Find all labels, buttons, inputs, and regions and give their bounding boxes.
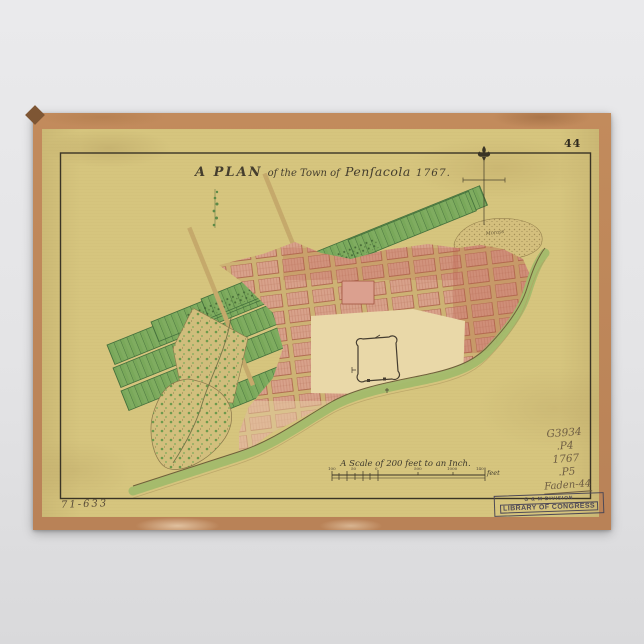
map-poster: A PLAN of the Town of Penſacola 1767. 44… (33, 113, 611, 530)
scale-tick-label: 50 (351, 466, 356, 471)
title-place: Penſacola (345, 164, 411, 179)
title-middle: of the Town of (268, 168, 340, 179)
scale-tick-label: 1400 (476, 466, 486, 471)
margin-note: 71-633 (61, 498, 109, 511)
sprig-plant (213, 189, 219, 228)
scale-tick-label: 1000 (447, 466, 457, 471)
library-stamp: G & M DIVISION LIBRARY OF CONGRESS (494, 492, 605, 517)
scale-bar (332, 470, 485, 481)
scale-unit-label: feet (487, 469, 500, 477)
plate-number: 44 (564, 137, 581, 150)
scale-tick-label: 500 (414, 466, 422, 471)
map-title: A PLAN of the Town of Penſacola 1767. (173, 161, 473, 180)
scale-caption: A Scale of 200 feet to an Inch. (318, 459, 493, 469)
scale-tick-label: 0 (375, 466, 378, 471)
gray-backdrop: A PLAN of the Town of Penſacola 1767. 44… (0, 0, 644, 644)
title-year: 1767. (416, 167, 451, 179)
title-prefix: A PLAN (195, 165, 263, 180)
scale-tick-label: 100 (328, 466, 336, 471)
call-number: G3934 .P4 1767 .P5 Faden-44 (527, 424, 605, 495)
orchard-grove (151, 379, 232, 469)
